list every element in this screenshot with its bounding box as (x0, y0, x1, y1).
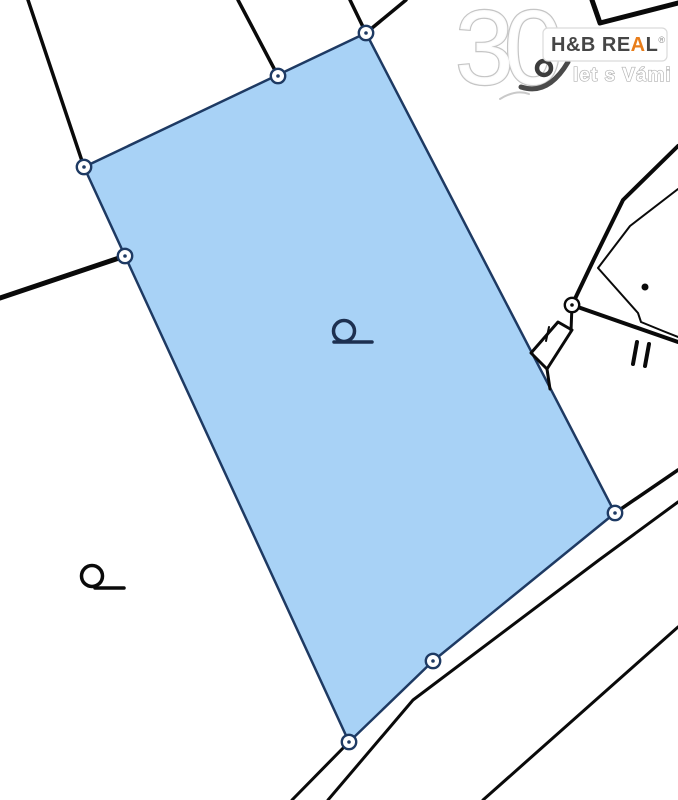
vertex-marker-top (359, 26, 373, 40)
vertex-marker-east-corner (608, 506, 622, 520)
boundary-east-corner (615, 470, 678, 513)
boundary-top-left (28, 0, 84, 167)
boundary-top-mid (238, 0, 278, 76)
vertex-marker-top-edge (271, 69, 285, 83)
vertex-marker-bottom-edge (426, 654, 440, 668)
land-use-symbol-neighbor (82, 566, 125, 589)
boundary-south-extension (292, 742, 349, 800)
vertex-marker-left-edge (118, 249, 132, 263)
registered-mark: ® (658, 35, 665, 45)
watermark-brand-box: H&B REAL® (543, 28, 667, 61)
vertex-marker-left-corner (77, 160, 91, 174)
watermark-tagline: let s Vámi (573, 65, 672, 86)
brand-suffix: L (646, 34, 659, 56)
junction-line-upper (572, 146, 678, 305)
corner-top-right (592, 0, 678, 23)
cadastral-map: 30 H&B REAL® let s Vámi (0, 0, 678, 800)
vertex-marker-bottom-corner (342, 735, 356, 749)
brand-accent-letter: A (631, 34, 646, 56)
boundary-left (0, 256, 125, 298)
watermark-brand-text: H&B REAL® (551, 34, 665, 56)
cadastral-map-image: 30 H&B REAL® let s Vámi (0, 0, 678, 800)
parallel-marker-line-1 (633, 342, 637, 364)
map-layer (0, 0, 678, 800)
parallel-marker-line-2 (645, 344, 649, 366)
junction-line-lower-right (572, 305, 678, 342)
highlighted-parcel (84, 33, 615, 742)
building-dot (642, 284, 649, 291)
junction-marker (565, 298, 579, 312)
road-edge-2 (483, 627, 678, 800)
building-outline (598, 189, 678, 337)
brand-prefix: H&B RE (551, 34, 631, 56)
watermark: 30 H&B REAL® let s Vámi (455, 0, 672, 107)
